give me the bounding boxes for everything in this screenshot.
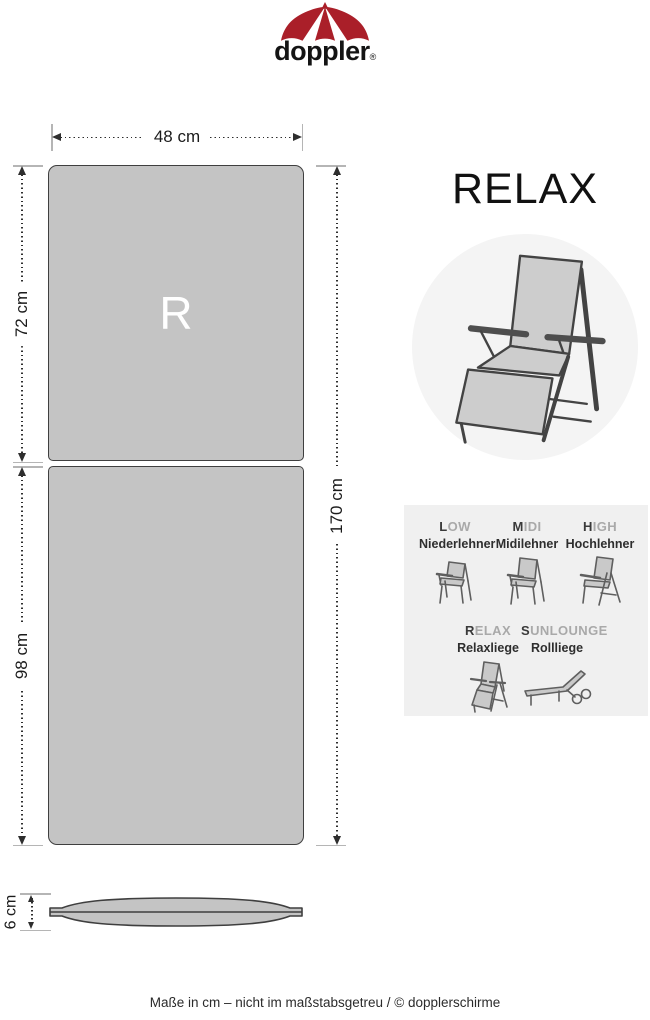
total-length-value: 170 cm	[326, 469, 348, 543]
cushion-side-view	[48, 896, 304, 928]
type-name: Relaxliege	[452, 641, 524, 655]
arrow-up-icon	[18, 467, 26, 476]
midi-chair-icon	[500, 555, 554, 611]
type-label: RELAX	[452, 623, 524, 638]
spec-sheet: doppler® 48 cm R 72 cm 98 cm	[0, 0, 650, 1020]
extension-line	[316, 845, 346, 847]
relax-chair-icon	[422, 244, 628, 450]
high-chair-icon	[573, 555, 627, 611]
chair-types-panel: LOW Niederlehner MIDI Midilehner	[404, 505, 648, 716]
arrow-up-icon	[18, 166, 26, 175]
brand-text: doppler	[274, 36, 370, 66]
chair-type-high: HIGH Hochlehner	[564, 519, 636, 616]
doppler-logo: doppler®	[0, 2, 650, 69]
back-length-value: 72 cm	[11, 282, 33, 346]
type-label: LOW	[419, 519, 491, 534]
width-dimension: 48 cm	[52, 124, 302, 151]
cushion-back-section: R	[48, 165, 304, 461]
sunlounge-icon	[521, 659, 597, 713]
chair-type-relax: RELAX Relaxliege	[452, 623, 524, 722]
cushion-marking: R	[159, 286, 192, 340]
chair-type-midi: MIDI Midilehner	[491, 519, 563, 616]
arrow-right-icon	[293, 133, 302, 141]
type-label: SUNLOUNGE	[521, 623, 593, 638]
chair-type-sunlounge: SUNLOUNGE Rollliege	[521, 623, 593, 718]
arrow-up-icon	[28, 895, 34, 902]
arrow-left-icon	[52, 133, 61, 141]
registered-mark: ®	[370, 52, 376, 62]
extension-line	[20, 893, 51, 895]
total-length-dimension: 170 cm	[327, 166, 347, 845]
relax-chair-small-icon	[461, 659, 515, 717]
back-length-dimension: 72 cm	[12, 166, 32, 462]
chair-type-low: LOW Niederlehner	[419, 519, 491, 616]
type-name: Rollliege	[521, 641, 593, 655]
seat-length-value: 98 cm	[11, 624, 33, 688]
type-label: HIGH	[564, 519, 636, 534]
arrow-up-icon	[333, 166, 341, 175]
width-value: 48 cm	[144, 126, 210, 148]
footer-note: Maße in cm – nicht im maßstabsgetreu / ©…	[0, 995, 650, 1010]
arrow-down-icon	[28, 922, 34, 929]
type-name: Niederlehner	[419, 537, 491, 551]
arrow-down-icon	[333, 836, 341, 845]
extension-line	[20, 930, 51, 932]
chair-illustration-circle	[412, 234, 638, 460]
type-name: Hochlehner	[564, 537, 636, 551]
thickness-dimension	[25, 895, 39, 929]
thickness-value-wrap: 6 cm	[0, 893, 22, 931]
extension-line	[316, 165, 346, 167]
seat-length-dimension: 98 cm	[12, 467, 32, 845]
brand-wordmark: doppler®	[0, 39, 650, 69]
arrow-down-icon	[18, 836, 26, 845]
type-label: MIDI	[491, 519, 563, 534]
low-chair-icon	[428, 555, 482, 611]
arrow-down-icon	[18, 453, 26, 462]
thickness-value: 6 cm	[2, 895, 20, 930]
type-name: Midilehner	[491, 537, 563, 551]
cushion-seat-section	[48, 466, 304, 845]
page-title: RELAX	[400, 168, 650, 211]
